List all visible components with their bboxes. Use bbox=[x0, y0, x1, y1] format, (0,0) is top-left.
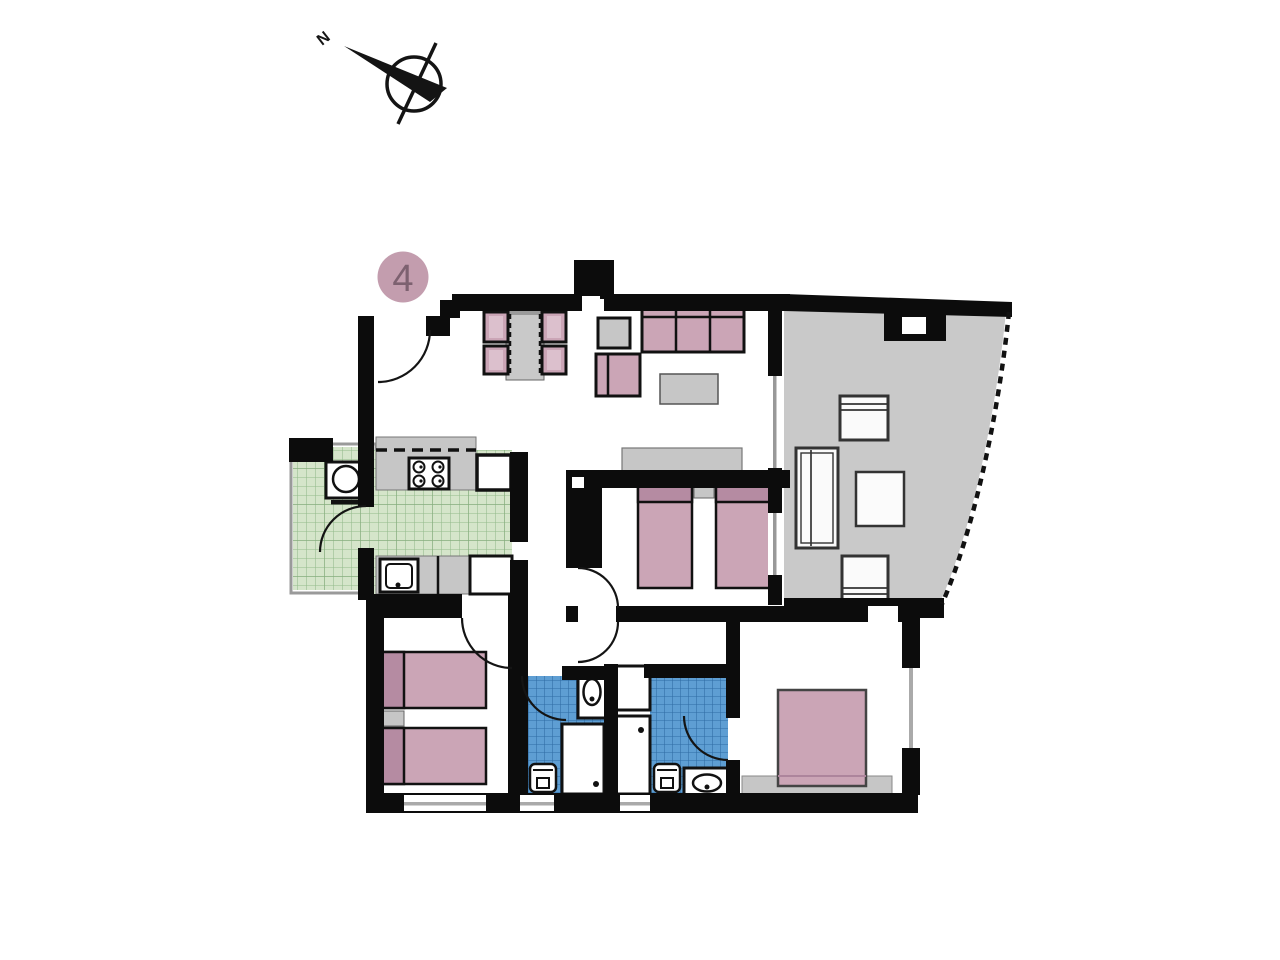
bedroom-2-furniture bbox=[638, 480, 770, 588]
double-bed bbox=[778, 690, 866, 786]
wall-kitchen-right-upper bbox=[510, 452, 528, 542]
terrace-chair bbox=[840, 396, 888, 440]
bedroom2-door-gap bbox=[578, 606, 616, 622]
unit-number-badge: 4 bbox=[378, 252, 429, 303]
wall-between-bathrooms bbox=[604, 664, 618, 798]
wall-bathroom2-right-upper bbox=[726, 622, 740, 718]
toilet bbox=[654, 764, 680, 792]
chair-pad bbox=[547, 350, 561, 370]
badge-number: 4 bbox=[392, 258, 413, 300]
sideboard bbox=[622, 448, 742, 473]
wall-top bbox=[452, 294, 582, 311]
shower bbox=[614, 716, 650, 794]
wall-bathroom2-right-lower bbox=[726, 760, 740, 798]
chair-pad bbox=[489, 316, 503, 338]
master-door-gap bbox=[868, 606, 898, 622]
sofa bbox=[642, 306, 744, 352]
sun-lounger bbox=[796, 448, 838, 548]
shower bbox=[562, 724, 604, 794]
wall-kitchen-bedroom1 bbox=[366, 594, 462, 618]
wall bbox=[358, 316, 374, 507]
side-table bbox=[598, 318, 630, 348]
chimney-notch bbox=[584, 299, 604, 312]
chair-pad bbox=[547, 316, 561, 338]
armchair bbox=[596, 354, 640, 396]
dining-table bbox=[506, 306, 544, 380]
compass-north-label: N bbox=[314, 29, 334, 50]
living-dining-room bbox=[484, 306, 744, 473]
glass-line bbox=[773, 376, 777, 468]
chair-pad bbox=[489, 350, 503, 370]
glass-line bbox=[620, 802, 650, 806]
glass-line bbox=[773, 513, 777, 575]
toilet bbox=[530, 764, 556, 792]
glass-line bbox=[909, 668, 913, 748]
glass-line bbox=[404, 802, 486, 806]
wall-left-lower bbox=[366, 598, 384, 795]
single-bed bbox=[638, 480, 692, 588]
wall-left-stub bbox=[358, 548, 374, 600]
coffee-table bbox=[660, 374, 718, 404]
kitchen-sink bbox=[380, 559, 418, 592]
base-cabinet bbox=[470, 556, 512, 594]
glass-line bbox=[520, 802, 554, 806]
wall-balcony-cap bbox=[289, 438, 333, 462]
wall-bathroom1-top bbox=[562, 666, 606, 680]
fridge bbox=[477, 455, 511, 490]
wall-hallway bbox=[566, 606, 902, 622]
compass-rose: N bbox=[314, 29, 447, 124]
hallway-door-arc bbox=[578, 622, 618, 662]
single-bed bbox=[380, 652, 486, 708]
stove bbox=[409, 458, 449, 489]
terrace-chair bbox=[842, 556, 888, 602]
wall-chimney bbox=[574, 260, 614, 296]
bedroom-1-furniture bbox=[380, 652, 486, 784]
shaft-notch bbox=[572, 477, 584, 488]
single-bed bbox=[716, 480, 770, 588]
floor-plan: N 4 bbox=[0, 0, 1280, 960]
pillar-notch bbox=[902, 317, 926, 334]
entrance-door-arc bbox=[378, 330, 430, 382]
floor-plan-page: N 4 bbox=[0, 0, 1280, 960]
single-bed bbox=[380, 728, 486, 784]
wall-bathroom2-top bbox=[644, 664, 740, 678]
terrace-table bbox=[856, 472, 904, 526]
bedroom2-door-arc bbox=[578, 568, 618, 608]
wall-top bbox=[600, 294, 790, 311]
master-bedroom-furniture bbox=[742, 690, 892, 794]
